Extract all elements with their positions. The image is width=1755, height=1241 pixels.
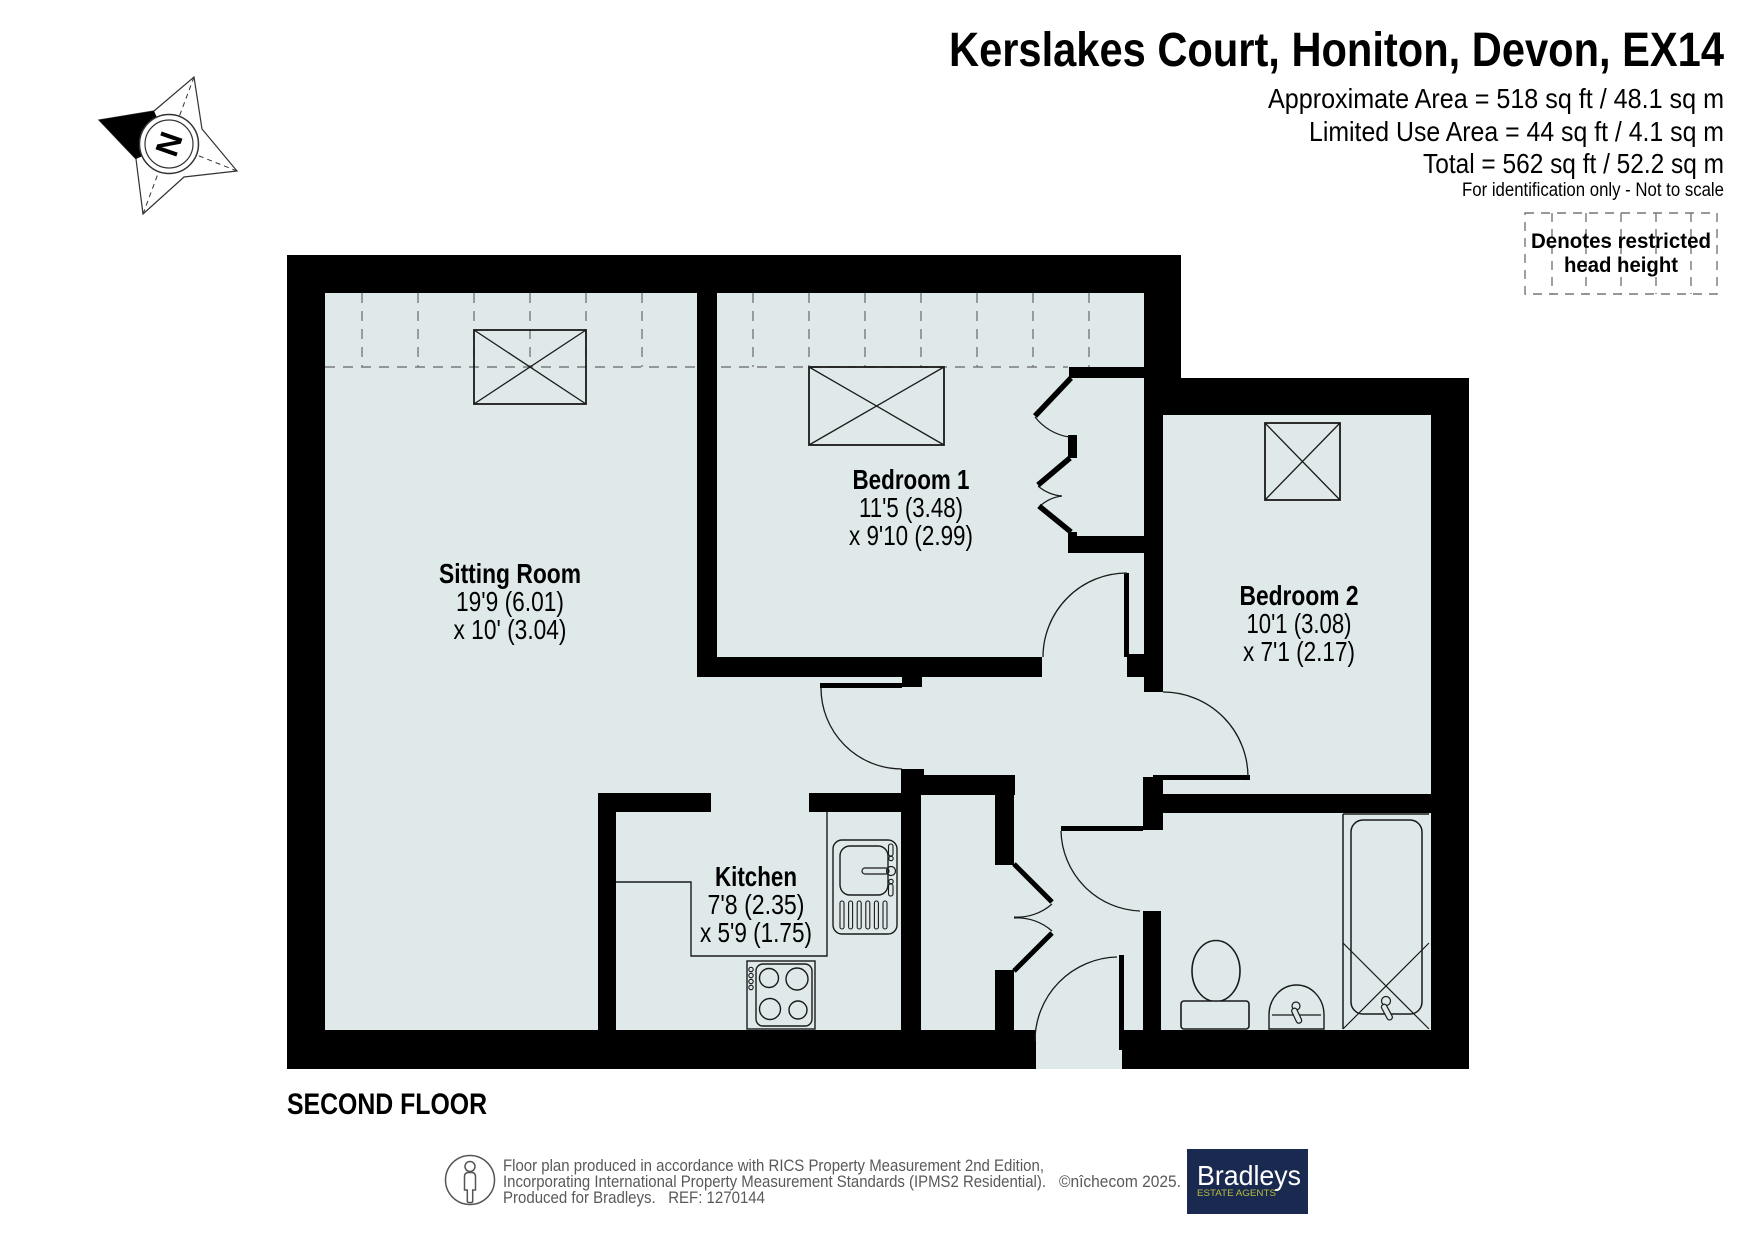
svg-text:x 10' (3.04): x 10' (3.04) <box>454 614 567 645</box>
svg-text:head height: head height <box>1564 254 1678 277</box>
svg-text:10'1 (3.08): 10'1 (3.08) <box>1247 608 1352 639</box>
svg-text:Bradleys: Bradleys <box>1197 1160 1301 1191</box>
svg-text:Kitchen: Kitchen <box>715 861 797 892</box>
svg-text:Bedroom 2: Bedroom 2 <box>1240 580 1359 611</box>
svg-text:Limited Use Area = 44 sq ft /: Limited Use Area = 44 sq ft / 4.1 sq m <box>1309 116 1724 147</box>
svg-text:7'8 (2.35): 7'8 (2.35) <box>708 889 805 920</box>
svg-text:Denotes restricted: Denotes restricted <box>1531 230 1711 253</box>
svg-text:©nîchecom 2025.: ©nîchecom 2025. <box>1059 1173 1181 1191</box>
svg-text:Produced for Bradleys. REF:: Produced for Bradleys. REF: 1270144 <box>503 1189 765 1207</box>
svg-text:Approximate Area = 518 sq ft /: Approximate Area = 518 sq ft / 48.1 sq m <box>1268 83 1724 114</box>
svg-text:x 5'9 (1.75): x 5'9 (1.75) <box>700 917 812 948</box>
svg-text:x 7'1 (2.17): x 7'1 (2.17) <box>1243 636 1355 667</box>
svg-text:11'5 (3.48): 11'5 (3.48) <box>859 492 963 523</box>
svg-text:SECOND FLOOR: SECOND FLOOR <box>287 1088 487 1121</box>
svg-text:x 9'10 (2.99): x 9'10 (2.99) <box>849 520 973 551</box>
svg-text:Total = 562 sq ft / 52.2 sq m: Total = 562 sq ft / 52.2 sq m <box>1423 148 1724 179</box>
svg-text:Sitting Room: Sitting Room <box>439 558 581 589</box>
svg-text:19'9 (6.01): 19'9 (6.01) <box>456 586 564 617</box>
svg-text:Kerslakes Court, Honiton, Devo: Kerslakes Court, Honiton, Devon, EX14 <box>949 24 1724 77</box>
svg-text:For identification only - Not: For identification only - Not to scale <box>1462 179 1724 201</box>
svg-text:ESTATE AGENTS: ESTATE AGENTS <box>1197 1188 1276 1198</box>
svg-text:Bedroom 1: Bedroom 1 <box>853 464 970 495</box>
